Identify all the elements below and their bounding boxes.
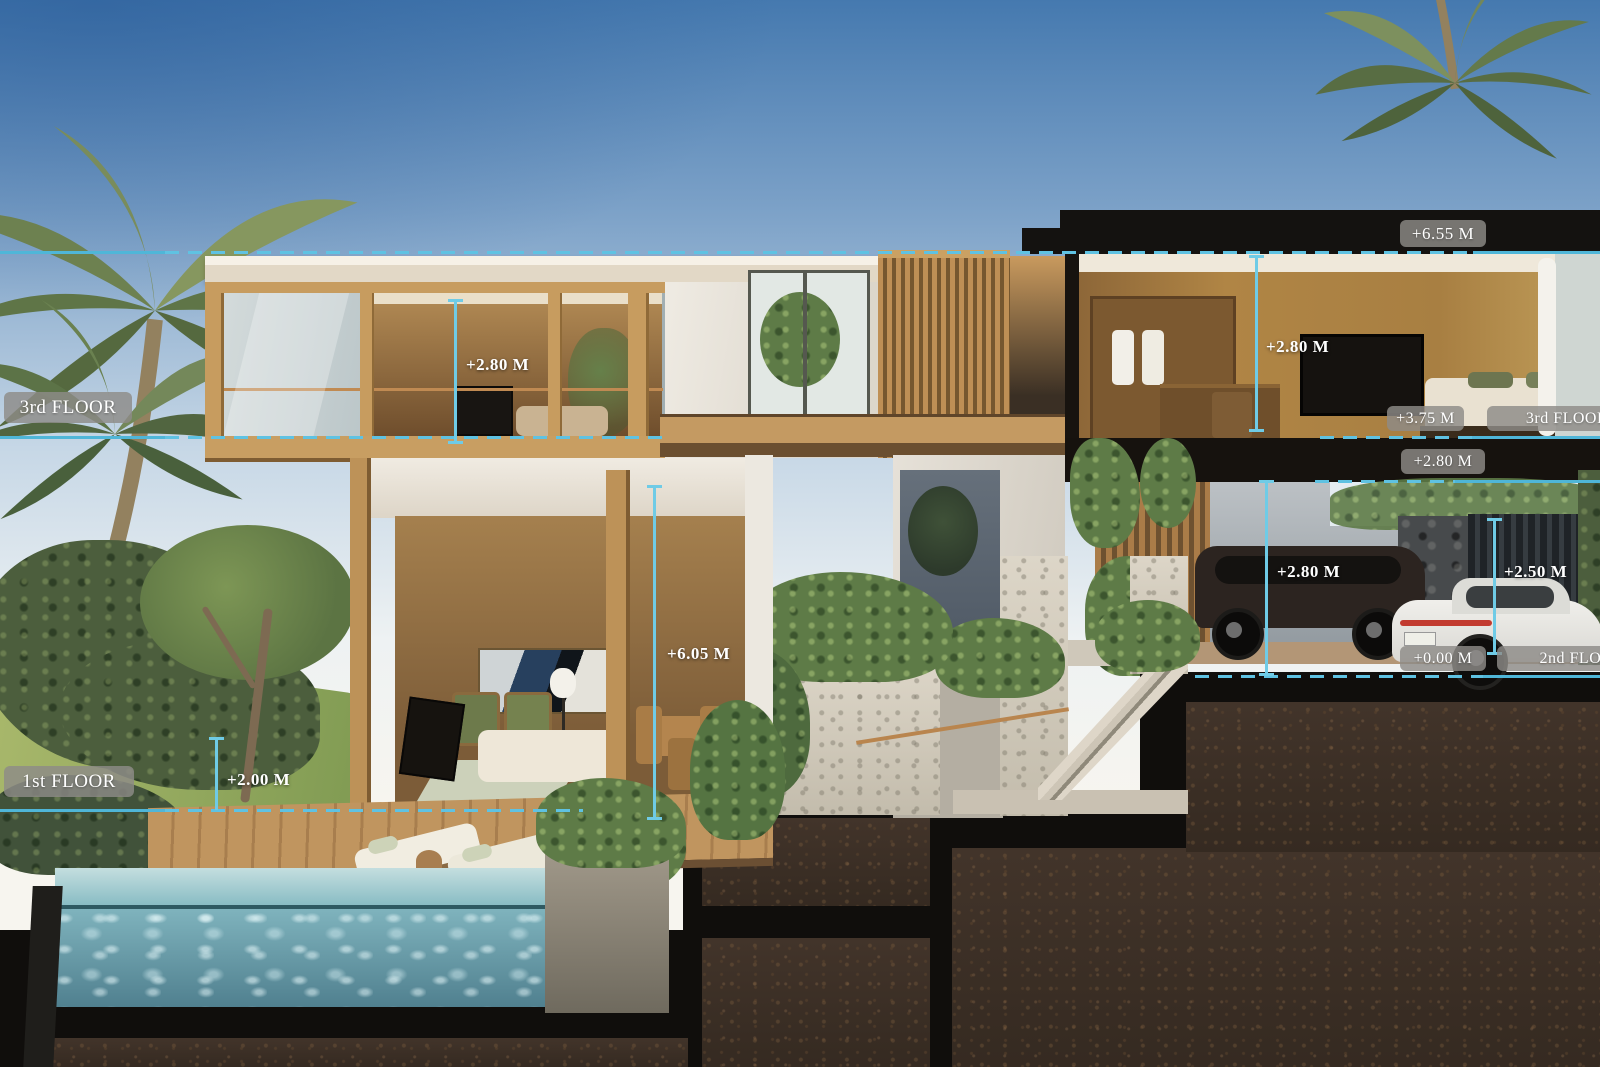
measure-cap — [1259, 673, 1274, 676]
walkway-slab — [660, 414, 1065, 457]
hanging-plants — [1140, 438, 1196, 528]
level-line-first-floor — [0, 809, 165, 812]
level-line-third-floor-right — [1472, 436, 1600, 439]
soil-block — [52, 1038, 688, 1067]
wood-beam-top — [205, 282, 665, 293]
desk-chair — [1212, 392, 1252, 438]
measure-cap — [647, 817, 662, 820]
elevation-pill-roof: +6.55 M — [1400, 220, 1486, 247]
sports-car-plate — [1404, 632, 1436, 646]
measure-line-bedroom — [1255, 257, 1258, 432]
level-line-roof-right — [1473, 251, 1600, 254]
elevation-pill-slab: +2.80 M — [1401, 449, 1485, 474]
measure-cap — [647, 485, 662, 488]
floor-lamp — [550, 668, 576, 698]
level-line-slab-dashed — [1315, 480, 1455, 483]
measure-cap — [1259, 480, 1274, 483]
courtyard-palm — [908, 486, 978, 576]
level-line-ground-right — [1483, 675, 1600, 678]
minivan-wheel-rim — [1226, 622, 1242, 638]
level-line-first-floor-dashed — [165, 809, 583, 812]
bed-pillow — [1468, 372, 1513, 388]
hanging-shirt — [1142, 330, 1164, 385]
measure-cap — [1487, 518, 1502, 521]
measurement-label: +2.50 M — [1504, 562, 1567, 582]
villa-section-rendering: +2.80 M +6.05 M +2.80 M +2.80 M +2.50 M … — [0, 0, 1600, 1067]
level-line-roof-dashed — [165, 251, 1473, 254]
sports-car-window — [1466, 586, 1554, 608]
hanging-shirt — [1112, 330, 1134, 385]
roof-parapet-right — [1060, 210, 1600, 254]
sports-car-taillight — [1400, 620, 1492, 626]
floor-label-second-right: 2nd FLOOR — [1497, 646, 1600, 671]
measurement-label: +2.80 M — [466, 355, 529, 375]
wood-column — [205, 282, 224, 458]
sofa-third-floor — [516, 406, 608, 436]
measurement-label: +2.80 M — [1277, 562, 1340, 582]
level-line-slab-right — [1455, 480, 1600, 483]
measurement-label: +2.00 M — [227, 770, 290, 790]
measure-cap — [448, 299, 463, 302]
tree-canopy — [140, 525, 355, 680]
level-line-third-floor-dashed-right — [1320, 436, 1472, 439]
terrace-greenery — [1095, 600, 1200, 672]
measure-cap — [448, 441, 463, 444]
dining-chair — [636, 706, 662, 764]
pool-planter-face — [545, 845, 669, 1013]
level-line-third-floor-dashed — [165, 436, 663, 439]
measure-cap — [1249, 429, 1264, 432]
floor-label-third-right: 3rd FLOOR — [1487, 406, 1600, 431]
tv-screen-living — [399, 696, 465, 781]
tv-screen-third-floor — [455, 386, 513, 436]
soil-block — [952, 848, 1600, 1067]
measure-cap — [1249, 255, 1264, 258]
floor-label-third-left: 3rd FLOOR — [4, 392, 132, 423]
measure-cap — [209, 737, 224, 740]
measure-line-living-void — [653, 487, 656, 820]
deck-plants — [690, 700, 785, 840]
wood-column — [360, 282, 374, 458]
measure-line-garden — [215, 739, 218, 810]
level-line-third-floor — [0, 436, 165, 439]
wood-column — [548, 282, 562, 458]
measure-line-gate — [1493, 520, 1496, 655]
measurement-label: +6.05 M — [667, 644, 730, 664]
living-ceiling — [350, 458, 750, 518]
stair-landing — [953, 790, 1188, 814]
measure-line-garage — [1265, 482, 1268, 676]
level-line-roof — [0, 251, 165, 254]
bedroom-ceiling — [1065, 254, 1600, 272]
soil-block — [702, 938, 930, 1067]
minivan-wheel-rim — [1366, 622, 1382, 638]
measure-line-third-room — [454, 301, 457, 444]
measurement-label: +2.80 M — [1266, 337, 1329, 357]
wood-column — [628, 282, 649, 458]
floor-label-first-left: 1st FLOOR — [4, 766, 134, 797]
elevation-pill-third: +3.75 M — [1387, 406, 1464, 431]
level-line-ground-dashed — [1195, 675, 1483, 678]
elevation-pill-ground: +0.00 M — [1400, 646, 1486, 671]
soil-block — [1186, 702, 1600, 852]
palm-behind-window — [760, 292, 840, 387]
